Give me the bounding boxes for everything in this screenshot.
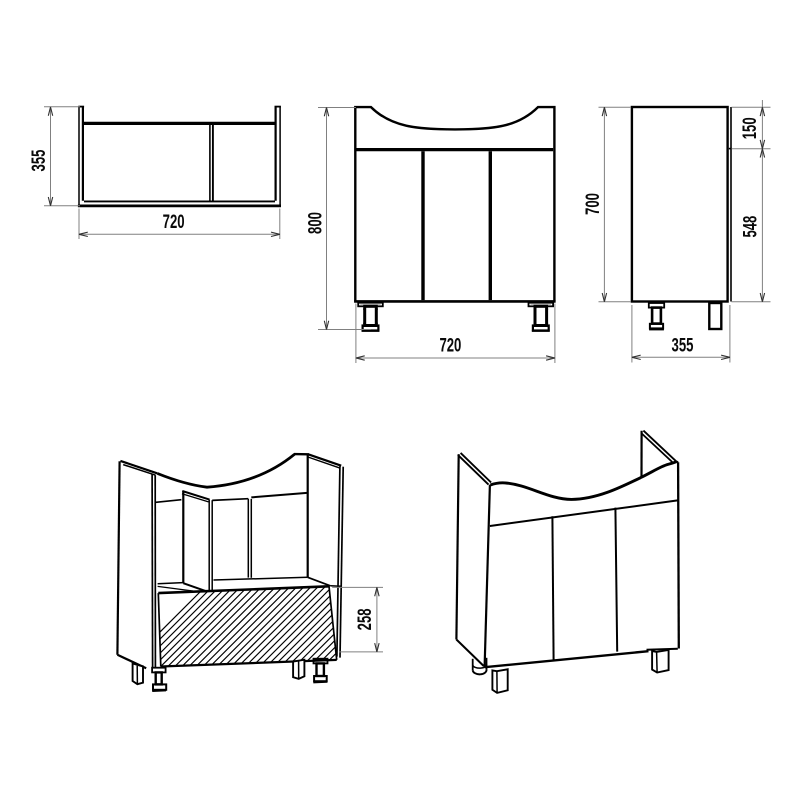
svg-text:720: 720: [439, 334, 461, 356]
svg-text:800: 800: [304, 212, 326, 234]
svg-text:700: 700: [581, 193, 603, 215]
svg-text:258: 258: [353, 608, 375, 630]
svg-text:355: 355: [672, 334, 694, 356]
svg-text:150: 150: [738, 117, 760, 139]
svg-text:355: 355: [27, 150, 49, 172]
svg-text:720: 720: [163, 210, 185, 232]
svg-text:548: 548: [739, 216, 761, 238]
